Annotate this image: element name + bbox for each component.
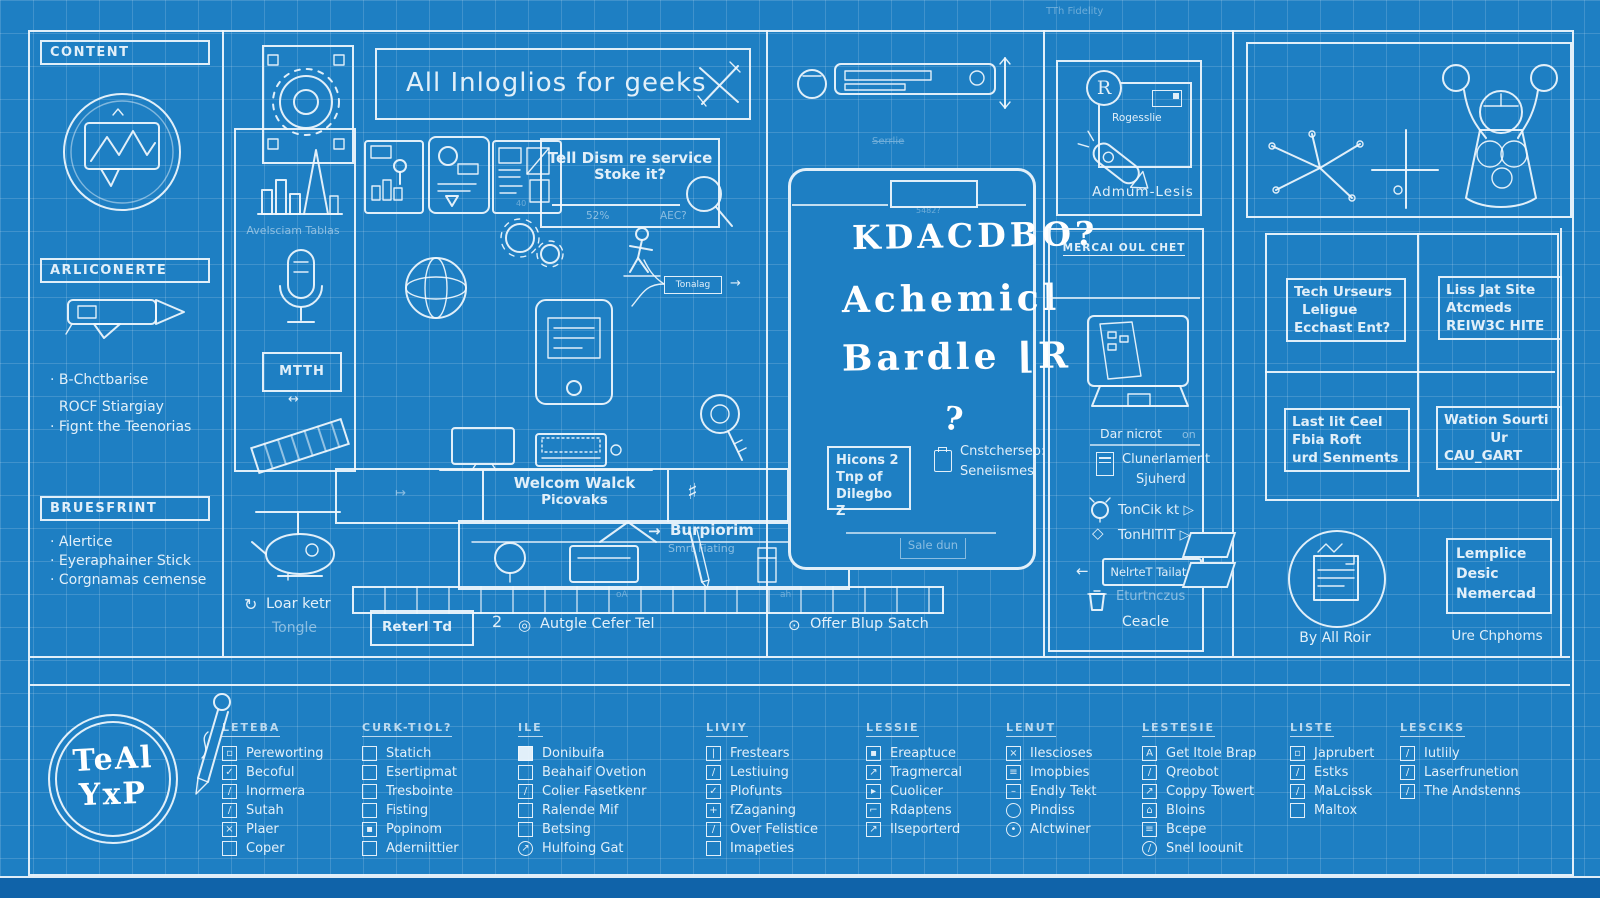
checkbox-icon[interactable] (362, 841, 377, 856)
checkbox-icon[interactable]: / (706, 765, 721, 780)
legend-item[interactable]: /Estks (1290, 763, 1374, 782)
sidebar-title-blueprint: BRUESFRINT (40, 496, 210, 521)
note-line1: Cnstchersep: (960, 444, 1045, 459)
checkbox-icon[interactable]: ↗ (518, 841, 533, 856)
media-header-label: MERCAI OUL CHET (1063, 242, 1186, 256)
refresh-icon[interactable]: ↻ (244, 595, 257, 614)
ribbon-line2: Picovaks (482, 492, 667, 508)
divider (30, 684, 1570, 686)
analytics-card-icon (364, 140, 420, 210)
blueprint-canvas: TTh Fidelity CONTENT ARLICONERTE · B-Chc… (0, 0, 1600, 896)
legend-item-label: Laserfrunetion (1424, 765, 1519, 780)
legend-column-4: LIVIY|Frestears/Lestiuing✓Plofunts+fZaga… (706, 716, 818, 858)
branch-lines (626, 256, 670, 312)
legend-item[interactable]: ▫Pereworting (222, 744, 324, 763)
survey-pct: 52% (586, 210, 609, 222)
divider (1417, 233, 1419, 497)
legend-item-label: Over Felistice (730, 822, 818, 837)
legend-item-label: The Andstenns (1424, 784, 1521, 799)
legend-item-label: Bloins (1166, 803, 1205, 818)
legend-item[interactable]: Aderniittier (362, 839, 459, 858)
sidebar-title-content: CONTENT (40, 40, 210, 65)
offer-label[interactable]: Offer Blup Satch (810, 616, 929, 632)
checkbox-icon[interactable]: × (1006, 746, 1021, 761)
legend-item-label: Becoful (246, 765, 294, 780)
checkbox-icon[interactable] (362, 784, 377, 799)
bug-icon (1088, 498, 1112, 522)
legend-item-label: Pindiss (1030, 803, 1075, 818)
legend-item[interactable]: /MaLcissk (1290, 782, 1374, 801)
legend-item[interactable]: –Endly Tekt (1006, 782, 1097, 801)
legend-item-label: Tresbointe (386, 784, 453, 799)
toolbar-sketch (795, 56, 1015, 114)
legend-column-header: LESSIE (866, 721, 919, 737)
serrlie-note: Serrlie (872, 136, 904, 147)
legend-item[interactable]: Maltox (1290, 801, 1374, 820)
checkbox-icon[interactable]: ↗ (1142, 784, 1157, 799)
legend-item[interactable]: ⌐Rdaptens (866, 801, 962, 820)
legend-item[interactable]: /Iutlily (1400, 744, 1521, 763)
legend-column-5: LESSIE▪Ereaptuce↗Tragmercal▸Cuolicer⌐Rda… (866, 716, 962, 839)
legend-item[interactable]: ▪Popinom (362, 820, 459, 839)
loar-ketr-label[interactable]: Loar ketr (266, 596, 331, 612)
checkbox-icon[interactable] (362, 765, 377, 780)
grid-label-line: Atcmeds (1446, 299, 1554, 317)
chat-image-icon (55, 85, 190, 220)
reterl-button[interactable]: Reterl Td (370, 610, 474, 646)
sidebar-item[interactable]: · Eyeraphainer Stick (50, 553, 191, 569)
legend-item[interactable]: /The Andstenns (1400, 782, 1521, 801)
legend-item-label: Statich (386, 746, 431, 761)
legend-item[interactable]: Coper (222, 839, 324, 858)
legend-column-header: LENUT (1006, 721, 1056, 737)
note-line2: Seneiismes (960, 464, 1034, 479)
crossed-pencils-icon (696, 60, 742, 108)
sidebar-item-label: Eyeraphainer Stick (59, 553, 191, 569)
checkbox-icon[interactable]: / (1400, 784, 1415, 799)
divider (667, 470, 669, 522)
mtth-box: MTTH (262, 352, 342, 392)
legend-item[interactable]: /Inormera (222, 782, 324, 801)
checkbox-icon[interactable]: ≡ (1142, 822, 1157, 837)
checkbox-icon[interactable]: / (706, 822, 721, 837)
card-note: 40 (516, 199, 526, 208)
legend-item[interactable]: Tresbointe (362, 782, 459, 801)
page-title: All Inloglios for geeks (406, 68, 707, 98)
rocket-icon (58, 288, 198, 343)
ribbon-line1: Welcom Walck (482, 474, 667, 492)
media-header: MERCAI OUL CHET (1048, 236, 1200, 255)
mini-window-icon (1152, 90, 1182, 107)
teal-yxp-logo: TeAl YxP (48, 714, 178, 844)
legend-item-label: Alctwiner (1030, 822, 1091, 837)
legend-column-header: LIVIY (706, 721, 748, 737)
legend-item-label: Hulfoing Gat (542, 841, 624, 856)
legend-item-label: Ilescioses (1030, 746, 1092, 761)
target-icon: ◎ (518, 616, 531, 634)
legend-item[interactable]: Donibuifa (518, 744, 647, 763)
legend-column-2: CURK-TIOL?StatichEsertipmatTresbointeFis… (362, 716, 459, 858)
divider (846, 532, 996, 534)
phone-headline-3: Bardle ⌊R (842, 334, 1073, 379)
legend-item[interactable]: Imapeties (706, 839, 818, 858)
media-footer-label: Eturtnczus (1116, 589, 1185, 604)
dot-circle-icon: ⊙ (788, 616, 801, 634)
checkbox-icon[interactable]: – (1006, 784, 1021, 799)
legend-item[interactable]: ≡Imopbies (1006, 763, 1097, 782)
legend-item[interactable]: ↗Tragmercal (866, 763, 962, 782)
monitor-kiosk-icon (1082, 308, 1198, 420)
logo-line1: TeAl (49, 739, 177, 781)
legend-item-label: Snel loounit (1166, 841, 1243, 856)
legend-column-7: LESTESIEAGet Itole Brap/Qreobot↗Coppy To… (1142, 716, 1256, 858)
media-item-label2: Sjuherd (1136, 472, 1186, 487)
hicons-line: Hicons 2 (836, 452, 902, 469)
legend-item[interactable]: Statich (362, 744, 459, 763)
checkbox-icon[interactable]: / (1142, 765, 1157, 780)
fidelity-note: TTh Fidelity (1046, 6, 1103, 17)
legend-item[interactable]: /Snel loounit (1142, 839, 1256, 858)
sidebar-item[interactable]: ROCF Stiargiay (50, 399, 164, 415)
admin-caption: Admum-Lesis (1088, 184, 1198, 200)
ure-caption: Ure Chphoms (1442, 628, 1552, 644)
legend-item[interactable]: ↗Ilseporterd (866, 820, 962, 839)
legend-item[interactable]: Fisting (362, 801, 459, 820)
grid-label-line: Wation Sourti (1444, 411, 1554, 429)
ribbon-tick: ↦ (395, 486, 406, 501)
welcome-ribbon: ↦ Welcom Walck Picovaks ♯ (335, 468, 789, 524)
checkbox-icon[interactable]: | (706, 746, 721, 761)
burpiorim-sub: Smrt Fiating (668, 542, 735, 555)
hicons-box[interactable]: Hicons 2 Tnp of Dilegbo Z (827, 446, 911, 510)
checkbox-icon[interactable]: / (222, 803, 237, 818)
legend-item-label: Bcepe (1166, 822, 1206, 837)
legend-item[interactable]: •Alctwiner (1006, 820, 1097, 839)
checkbox-icon[interactable] (518, 765, 533, 780)
toncik-item[interactable]: TonCik kt ▷ (1118, 502, 1194, 518)
checkbox-icon[interactable]: / (518, 784, 533, 799)
legend-item-label: Colier Fasetkenr (542, 784, 647, 799)
sidebar-item[interactable]: · Corgnamas cemense (50, 572, 206, 588)
grid-label-line: urd Senments (1292, 449, 1402, 467)
sidebar-title-arliconerte: ARLICONERTE (40, 258, 210, 283)
sale-dun-label[interactable]: Sale dun (900, 538, 966, 559)
microphone-icon (268, 246, 332, 332)
checkbox-icon[interactable]: + (706, 803, 721, 818)
tongle-label[interactable]: Tongle (272, 620, 317, 636)
by-all-caption: By All Roir (1280, 630, 1390, 646)
legend-item[interactable]: ✓Plofunts (706, 782, 818, 801)
checkbox-icon[interactable]: ↗ (866, 765, 881, 780)
checkbox-icon[interactable]: ▫ (222, 746, 237, 761)
ribbon-mark: ♯ (687, 480, 698, 505)
checkbox-icon[interactable] (362, 746, 377, 761)
clipboard-icon (934, 450, 952, 472)
sidebar-item[interactable]: · B-Chctbarise (50, 372, 148, 388)
legend-item-label: Lestiuing (730, 765, 789, 780)
legend-item[interactable]: Esertipmat (362, 763, 459, 782)
legend-item[interactable]: Ralende Mif (518, 801, 647, 820)
checkbox-icon[interactable]: ✓ (706, 784, 721, 799)
sidebar-item[interactable]: · Alertice (50, 534, 112, 550)
hicons-line: Dilegbo Z (836, 486, 902, 520)
legend-item[interactable]: +fZaganing (706, 801, 818, 820)
media-footer-label2: Ceacle (1122, 614, 1169, 630)
lemplice-line: Nemercad (1456, 584, 1542, 604)
reterl-button-label: Reterl Td (372, 612, 472, 635)
divider (976, 204, 1026, 206)
legend-item-label: Inormera (246, 784, 305, 799)
checkbox-icon[interactable]: / (1290, 765, 1305, 780)
legend-item-label: Plaer (246, 822, 279, 837)
tablet-sketch (522, 296, 622, 414)
grid-label-line: Liss Jat Site (1446, 281, 1554, 299)
trash-icon (1086, 588, 1108, 612)
grid-label-box[interactable]: Last Iit Ceel Fbia Roft urd Senments (1284, 408, 1410, 472)
legend-column-header: ILE (518, 721, 543, 737)
legend-item[interactable]: ▫Japrubert (1290, 744, 1374, 763)
divider (222, 30, 224, 656)
checkbox-icon[interactable]: / (1400, 746, 1415, 761)
legend-item[interactable]: |Frestears (706, 744, 818, 763)
legend-item[interactable]: ↗Hulfoing Gat (518, 839, 647, 858)
legend-column-6: LENUT×Ilescioses≡Imopbies–Endly TektPind… (1006, 716, 1097, 839)
divider (30, 656, 1570, 658)
sidebar-item-label: Corgnamas cemense (59, 572, 207, 588)
desk-row-sketch (440, 420, 652, 474)
divider (552, 204, 680, 206)
checkbox-icon[interactable] (222, 841, 237, 856)
legend-item[interactable]: AGet Itole Brap (1142, 744, 1256, 763)
network-sketch (1260, 128, 1440, 212)
checkbox-icon[interactable]: • (1006, 822, 1021, 837)
legend-item-label: Maltox (1314, 803, 1357, 818)
legend-column-header: CURK-TIOL? (362, 721, 452, 737)
legend-column-3: ILEDonibuifaBeahaif Ovetion/Colier Faset… (518, 716, 647, 858)
legend-item-label: Cuolicer (890, 784, 943, 799)
legend-item[interactable]: /Sutah (222, 801, 324, 820)
legend-item-label: Imapeties (730, 841, 794, 856)
checkbox-icon[interactable]: ↗ (866, 822, 881, 837)
grid-label-line: Tech Urseurs (1294, 283, 1398, 301)
lemplice-box[interactable]: Lemplice Desic Nemercad (1446, 538, 1552, 614)
legend-item-label: Coppy Towert (1166, 784, 1254, 799)
checkbox-icon[interactable]: / (222, 784, 237, 799)
legend-item-label: Plofunts (730, 784, 782, 799)
legend-item[interactable]: ▪Ereaptuce (866, 744, 962, 763)
sidebar-item-label: Fignt the Teenorias (59, 419, 191, 435)
legend-item[interactable]: ×Plaer (222, 820, 324, 839)
legend-column-9: LESCIKS/Iutlily/Laserfrunetion/The Andst… (1400, 716, 1521, 801)
legend-item-label: Rdaptens (890, 803, 952, 818)
back-arrow-icon[interactable]: ← (1076, 562, 1089, 580)
legend-item[interactable]: ▸Cuolicer (866, 782, 962, 801)
legend-item-label: Esertipmat (386, 765, 457, 780)
legend-item-label: Qreobot (1166, 765, 1219, 780)
checkbox-icon[interactable]: A (1142, 746, 1157, 761)
checkbox-icon[interactable]: ⌐ (866, 803, 881, 818)
grid-label-box[interactable]: Liss Jat Site Atcmeds REIW3C HITE (1438, 276, 1562, 340)
grid-label-line: Last Iit Ceel (1292, 413, 1402, 431)
divider (792, 204, 888, 206)
legend-item[interactable]: /Laserfrunetion (1400, 763, 1521, 782)
lemplice-line: Desic (1456, 564, 1542, 584)
lemplice-line: Lemplice (1456, 544, 1542, 564)
legend-item-label: Beahaif Ovetion (542, 765, 646, 780)
legend-item-label: Fisting (386, 803, 428, 818)
survey-line1: Tell Dism re service (542, 149, 718, 167)
divider (1265, 371, 1555, 373)
legend-item[interactable]: Pindiss (1006, 801, 1097, 820)
magnifier-key-icon (698, 390, 758, 468)
dar-on: on (1182, 428, 1196, 441)
hicons-line: Tnp of (836, 469, 902, 486)
grid-label-line: Ecchast Ent? (1294, 319, 1398, 337)
legend-item-label: Get Itole Brap (1166, 746, 1256, 761)
legend-item-label: fZaganing (730, 803, 796, 818)
grid-label-line: CAU_GART (1444, 447, 1554, 465)
report-doc-sketch (1288, 530, 1382, 624)
legend-item[interactable]: ×Ilescioses (1006, 744, 1097, 763)
checkbox-icon[interactable]: × (222, 822, 237, 837)
checkbox-icon[interactable] (706, 841, 721, 856)
tonalag-arrow: → (730, 276, 741, 291)
icon-strip-label: Avelsciam Tablas (236, 224, 350, 237)
legend-item-label: Japrubert (1314, 746, 1374, 761)
legend-item[interactable]: Betsing (518, 820, 647, 839)
legend-item-label: Pereworting (246, 746, 324, 761)
legend-item[interactable]: Beahaif Ovetion (518, 763, 647, 782)
legend-column-header: LESCIKS (1400, 721, 1465, 737)
burpiorim-arrow: → (648, 522, 661, 540)
autgle-label[interactable]: Autgle Cefer Tel (540, 616, 655, 632)
legend-column-header: LISTE (1290, 721, 1334, 737)
checkbox-icon[interactable] (1006, 803, 1021, 818)
legend-item-label: Ereaptuce (890, 746, 956, 761)
helicopter-icon (248, 498, 348, 590)
grid-label-box[interactable]: Tech Urseurs Leligue Ecchast Ent? (1286, 278, 1406, 342)
legend-item-label: Popinom (386, 822, 442, 837)
legend-item[interactable]: ↗Coppy Towert (1142, 782, 1256, 801)
bar-chart-icon (252, 138, 347, 220)
card-stack-icon (1182, 532, 1236, 558)
checkbox-icon[interactable] (518, 803, 533, 818)
legend-item-label: Imopbies (1030, 765, 1089, 780)
tab-note: 5482? (916, 206, 941, 215)
tonalag-box: Tonalag (664, 276, 722, 294)
grid-label-line: REIW3C HITE (1446, 317, 1554, 335)
legend-item-label: Sutah (246, 803, 284, 818)
sidebar-item-label: Alertice (59, 534, 113, 550)
checkbox-icon[interactable]: ▫ (1290, 746, 1305, 761)
strongman-sketch (1428, 50, 1570, 212)
legend-item-label: Endly Tekt (1030, 784, 1097, 799)
chat-card-icon (428, 136, 486, 210)
r-badge-icon: R (1086, 70, 1122, 106)
sidebar-item[interactable]: · Fignt the Teenorias (50, 419, 191, 435)
checkbox-icon[interactable]: ≡ (1006, 765, 1021, 780)
grid-label-box[interactable]: Wation Sourti Ur CAU_GART (1436, 406, 1562, 470)
checkbox-icon[interactable]: / (1142, 841, 1157, 856)
legend-item[interactable]: ✓Becoful (222, 763, 324, 782)
legend-column-1: LETEBA▫Pereworting✓Becoful/Inormera/Suta… (222, 716, 324, 858)
arrows-glyph: ↔ (288, 392, 299, 407)
media-item-label[interactable]: Clunerlament (1122, 452, 1210, 467)
legend-item-label: Ilseporterd (890, 822, 960, 837)
checkbox-icon[interactable] (362, 803, 377, 818)
globe-icon (400, 252, 472, 324)
diamond-icon: ◇ (1092, 524, 1104, 542)
bottom-strip (0, 876, 1600, 898)
legend-item-label: Betsing (542, 822, 591, 837)
logo-line2: YxP (49, 775, 176, 814)
legend-item-label: Aderniittier (386, 841, 459, 856)
legend-item-label: Coper (246, 841, 285, 856)
gears-icon (500, 216, 570, 272)
checkbox-icon[interactable] (518, 746, 533, 761)
grid-label-line: Fbia Roft (1292, 431, 1402, 449)
step-mark: oA (616, 590, 628, 600)
checkbox-icon[interactable]: ▪ (866, 746, 881, 761)
checkbox-icon[interactable]: ▸ (866, 784, 881, 799)
checkbox-icon[interactable]: ⌂ (1142, 803, 1157, 818)
legend-item[interactable]: ≡Bcepe (1142, 820, 1256, 839)
legend-item[interactable]: /Lestiuing (706, 763, 818, 782)
checkbox-icon[interactable]: ▪ (362, 822, 377, 837)
grid-label-line: Leligue (1294, 301, 1398, 319)
card-stack-icon (1182, 562, 1236, 588)
dar-label: Dar nicrot (1100, 426, 1162, 441)
checkbox-icon[interactable] (518, 822, 533, 837)
magnifier-icon[interactable] (678, 170, 742, 234)
divider (1048, 297, 1200, 299)
legend-item-label: Ralende Mif (542, 803, 618, 818)
legend-item-label: Estks (1314, 765, 1348, 780)
checkbox-icon[interactable]: ✓ (222, 765, 237, 780)
legend-item-label: Frestears (730, 746, 790, 761)
burpiorim-label: Burpiorim (670, 521, 754, 539)
checkbox-icon[interactable]: / (1290, 784, 1305, 799)
legend-item[interactable]: /Colier Fasetkenr (518, 782, 647, 801)
grid-label-line: Ur (1444, 429, 1554, 447)
checkbox-icon[interactable] (1290, 803, 1305, 818)
sidebar-item-label: B-Chctbarise (59, 372, 149, 388)
checkbox-icon[interactable]: / (1400, 765, 1415, 780)
document-icon (1096, 452, 1114, 476)
legend-column-header: LESTESIE (1142, 721, 1215, 737)
legend-item-label: Donibuifa (542, 746, 604, 761)
divider (1090, 444, 1200, 446)
legend-item[interactable]: ⌂Bloins (1142, 801, 1256, 820)
legend-column-header: LETEBA (222, 721, 280, 737)
reterl-count: 2 (492, 612, 502, 631)
sidebar-item-label: ROCF Stiargiay (59, 399, 164, 415)
legend-item[interactable]: /Qreobot (1142, 763, 1256, 782)
step-mark: ah (780, 590, 791, 600)
legend-item-label: Tragmercal (890, 765, 962, 780)
legend-item-label: Iutlily (1424, 746, 1460, 761)
legend-item[interactable]: /Over Felistice (706, 820, 818, 839)
legend-item-label: MaLcissk (1314, 784, 1372, 799)
legend-column-8: LISTE▫Japrubert/Estks/MaLcisskMaltox (1290, 716, 1374, 820)
tonhitit-item[interactable]: TonHITIT ▷ (1118, 527, 1190, 543)
phone-headline-2: Achemicl (842, 277, 1061, 321)
phone-tab (890, 180, 978, 208)
